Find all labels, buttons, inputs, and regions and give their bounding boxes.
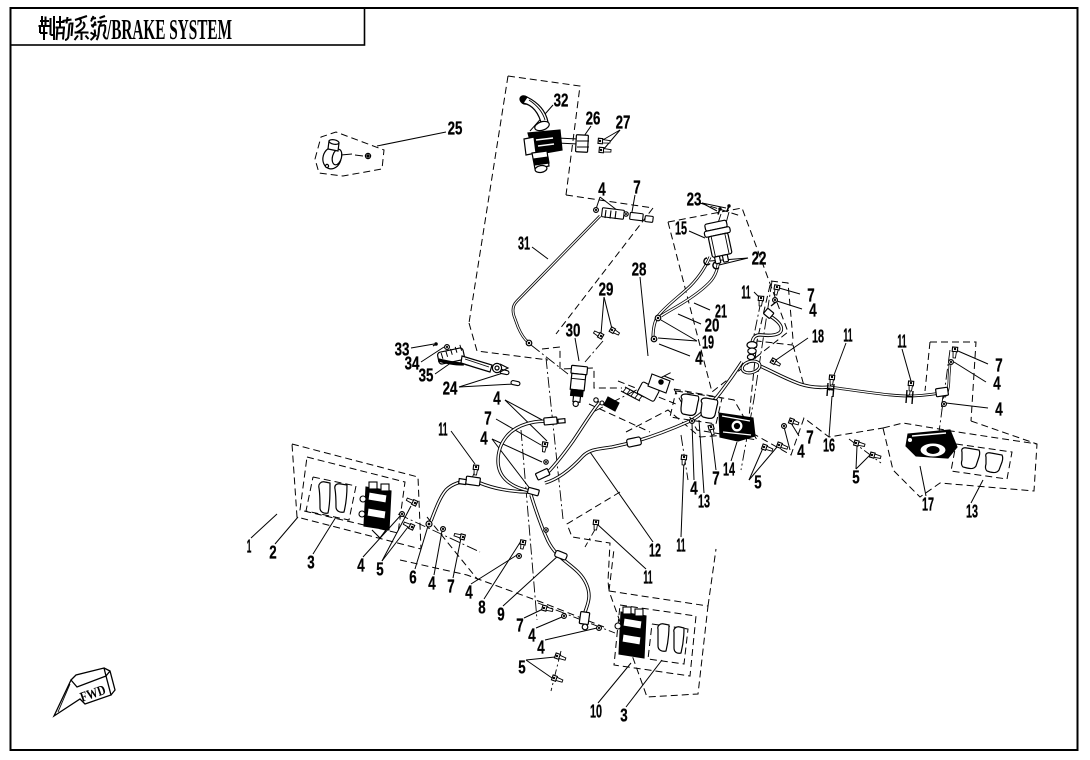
svg-text:7: 7 xyxy=(712,469,719,489)
svg-text:3: 3 xyxy=(620,706,627,726)
svg-text:14: 14 xyxy=(723,460,735,480)
svg-text:10: 10 xyxy=(590,702,602,722)
svg-text:4: 4 xyxy=(993,374,1000,394)
svg-text:16: 16 xyxy=(823,436,835,456)
svg-text:7: 7 xyxy=(995,356,1002,376)
svg-text:30: 30 xyxy=(566,321,581,341)
svg-text:32: 32 xyxy=(554,91,569,111)
svg-text:4: 4 xyxy=(357,556,364,576)
svg-text:7: 7 xyxy=(447,577,454,597)
svg-text:9: 9 xyxy=(497,605,504,625)
svg-text:22: 22 xyxy=(752,249,767,269)
svg-text:11: 11 xyxy=(438,420,447,440)
svg-text:4: 4 xyxy=(528,626,535,646)
svg-text:11: 11 xyxy=(741,283,750,303)
svg-text:4: 4 xyxy=(809,301,816,321)
svg-text:7: 7 xyxy=(633,178,640,198)
svg-text:13: 13 xyxy=(698,492,710,512)
svg-text:11: 11 xyxy=(676,536,685,556)
svg-text:15: 15 xyxy=(675,219,687,239)
svg-text:4: 4 xyxy=(995,400,1002,420)
svg-text:4: 4 xyxy=(695,349,702,369)
svg-text:31: 31 xyxy=(518,234,530,254)
svg-text:4: 4 xyxy=(690,479,697,499)
svg-text:4: 4 xyxy=(797,442,804,462)
svg-text:23: 23 xyxy=(687,190,702,210)
svg-text:7: 7 xyxy=(484,409,491,429)
svg-text:5: 5 xyxy=(754,473,761,493)
svg-text:7: 7 xyxy=(516,616,523,636)
svg-text:26: 26 xyxy=(586,109,601,129)
svg-text:19: 19 xyxy=(702,333,714,353)
svg-text:18: 18 xyxy=(812,327,824,347)
svg-text:6: 6 xyxy=(409,568,416,588)
svg-text:11: 11 xyxy=(643,568,652,588)
svg-text:FWD: FWD xyxy=(78,683,107,706)
svg-text:5: 5 xyxy=(518,658,525,678)
svg-text:27: 27 xyxy=(616,113,631,133)
svg-text:8: 8 xyxy=(478,598,485,618)
svg-text:4: 4 xyxy=(537,638,544,658)
svg-text:11: 11 xyxy=(897,332,906,352)
svg-text:4: 4 xyxy=(598,180,605,200)
svg-text:3: 3 xyxy=(307,553,314,573)
svg-text:2: 2 xyxy=(269,543,276,563)
svg-text:5: 5 xyxy=(376,560,383,580)
svg-text:5: 5 xyxy=(852,468,859,488)
svg-text:34: 34 xyxy=(405,354,420,374)
svg-text:12: 12 xyxy=(649,541,661,561)
svg-text:13: 13 xyxy=(966,502,978,522)
svg-text:35: 35 xyxy=(419,366,434,386)
svg-text:28: 28 xyxy=(632,260,647,280)
svg-text:25: 25 xyxy=(448,119,463,139)
svg-text:4: 4 xyxy=(480,429,487,449)
svg-text:17: 17 xyxy=(922,495,934,515)
svg-text:4: 4 xyxy=(465,583,472,603)
svg-text:4: 4 xyxy=(493,389,500,409)
svg-text:1: 1 xyxy=(247,537,252,557)
svg-text:4: 4 xyxy=(428,574,435,594)
svg-text:7: 7 xyxy=(806,428,813,448)
svg-text:24: 24 xyxy=(443,379,458,399)
svg-text:/BRAKE SYSTEM: /BRAKE SYSTEM xyxy=(106,15,232,46)
svg-text:11: 11 xyxy=(843,326,852,346)
svg-text:29: 29 xyxy=(599,280,614,300)
